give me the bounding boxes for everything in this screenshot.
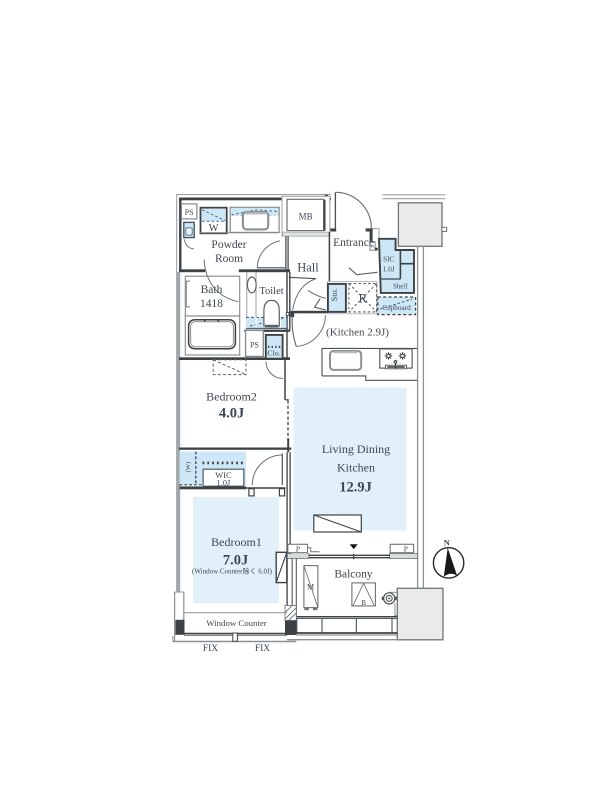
svg-text:(Kitchen 2.9J): (Kitchen 2.9J): [326, 326, 389, 338]
svg-text:(W): (W): [185, 462, 192, 473]
svg-text:1.0J: 1.0J: [217, 479, 231, 488]
svg-text:1418: 1418: [200, 298, 223, 310]
svg-text:P: P: [296, 545, 300, 554]
svg-text:PS: PS: [185, 208, 194, 217]
svg-text:Window Counter: Window Counter: [206, 618, 267, 628]
svg-text:B: B: [361, 599, 366, 607]
svg-text:R: R: [359, 291, 368, 305]
svg-text:Bedroom1: Bedroom1: [211, 535, 262, 549]
svg-text:SIC: SIC: [383, 256, 394, 264]
svg-text:Cupboard: Cupboard: [382, 304, 411, 312]
svg-text:Bath: Bath: [201, 284, 223, 296]
svg-text:Bedroom2: Bedroom2: [206, 390, 257, 404]
svg-text:MB: MB: [299, 212, 313, 222]
svg-text:Balcony: Balcony: [334, 569, 373, 581]
svg-text:FIX: FIX: [255, 644, 270, 654]
svg-text:PS: PS: [250, 340, 259, 349]
svg-text:Clo.: Clo.: [267, 348, 280, 357]
svg-text:M: M: [307, 583, 314, 592]
svg-text:Shelf: Shelf: [393, 283, 408, 290]
svg-text:4.0J: 4.0J: [219, 406, 244, 422]
svg-text:Powder: Powder: [211, 239, 246, 251]
svg-text:12.9J: 12.9J: [339, 480, 372, 496]
svg-text:(Window Counter除く 6.0J): (Window Counter除く 6.0J): [192, 566, 273, 575]
svg-text:Kitchen: Kitchen: [337, 461, 375, 475]
svg-text:FIX: FIX: [203, 644, 218, 654]
svg-text:Toilet: Toilet: [259, 286, 283, 297]
svg-text:N: N: [444, 538, 451, 548]
svg-text:Sto.: Sto.: [329, 288, 339, 301]
svg-text:Entrance: Entrance: [333, 237, 374, 249]
svg-text:7.0J: 7.0J: [223, 553, 248, 569]
svg-text:Hall: Hall: [297, 261, 319, 275]
svg-text:P: P: [404, 545, 408, 554]
svg-text:Room: Room: [215, 253, 243, 265]
svg-text:1.0J: 1.0J: [383, 266, 395, 274]
svg-text:Living Dining: Living Dining: [322, 442, 390, 456]
